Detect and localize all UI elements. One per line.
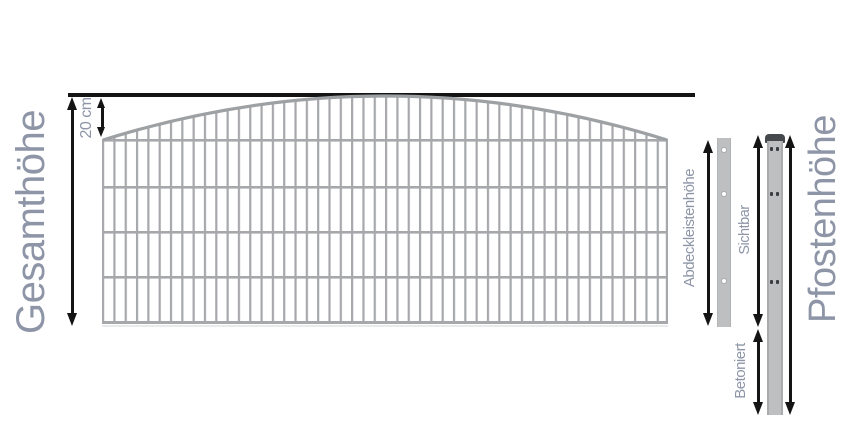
post-mounting-hole [776,192,779,196]
total-height-arrow [67,97,77,326]
post-graphic [767,141,783,415]
post-mounting-hole [770,192,773,196]
concreted-depth-arrow [753,329,763,415]
strip-hole [722,279,726,283]
vertical-bars [102,94,668,324]
post-mounting-hole [770,147,773,151]
concreted-depth-label: Betoniert [733,326,749,416]
cover-strip-height-label: Abdeckleistenhöhe [682,148,698,308]
visible-height-arrow [753,135,763,327]
strip-hole [722,192,726,196]
cover-strip-graphic [717,138,731,327]
cover-strip-height-arrow [703,140,713,326]
visible-height-label: Sichtbar [737,195,753,265]
strip-hole [722,148,726,152]
total-height-label: Gesamthöhe [6,72,56,372]
fence-dimension-diagram: Gesamthöhe 20 cm Abdeckleistenhöhe [0,0,850,425]
post-height-label: Pfostenhöhe [800,113,846,325]
fence-mesh-graphic [102,94,668,327]
arch-rise-label: 20 cm [78,83,96,153]
post-height-arrow [785,135,795,415]
post-mounting-hole [770,280,773,284]
post-mounting-hole [776,280,779,284]
post-mounting-hole [776,147,779,151]
